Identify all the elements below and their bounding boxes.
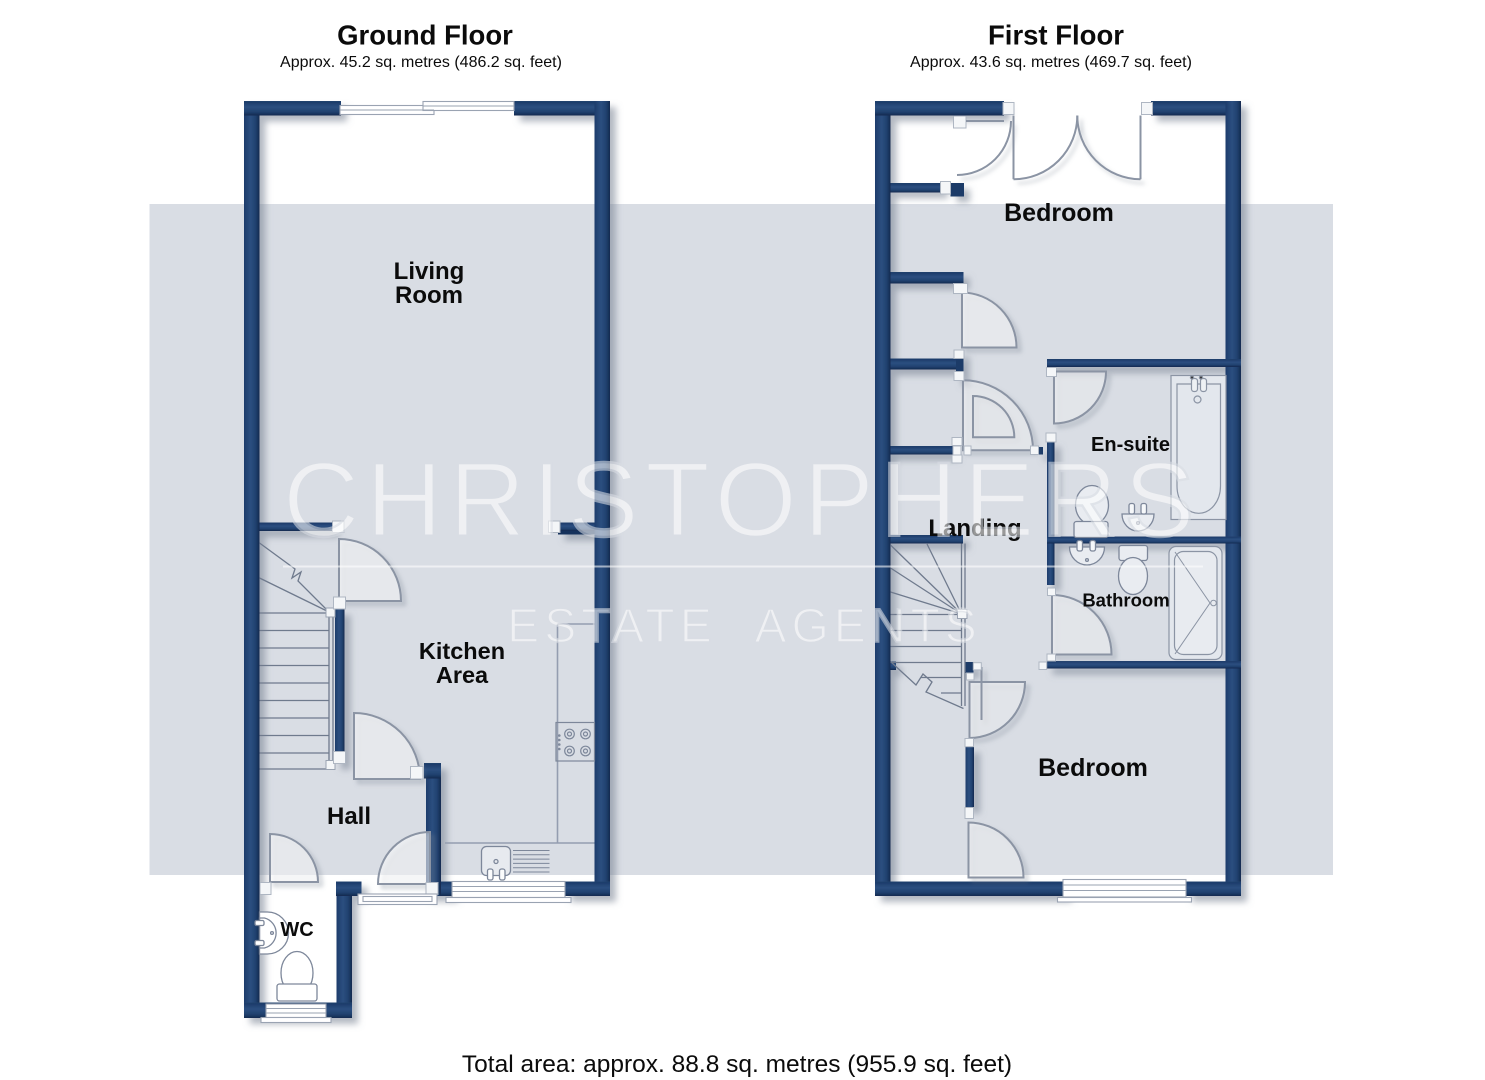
- svg-text:CHRISTOPHERS: CHRISTOPHERS: [283, 441, 1201, 559]
- svg-text:Hall: Hall: [327, 803, 371, 830]
- svg-text:ESTATE AGENTS: ESTATE AGENTS: [507, 600, 982, 653]
- svg-text:Kitchen: Kitchen: [419, 638, 505, 664]
- svg-text:Room: Room: [395, 282, 463, 309]
- svg-text:Living: Living: [394, 258, 465, 285]
- svg-text:Total area: approx. 88.8 sq. m: Total area: approx. 88.8 sq. metres (955…: [462, 1051, 1012, 1078]
- svg-text:Approx. 43.6 sq. metres (469.7: Approx. 43.6 sq. metres (469.7 sq. feet): [910, 54, 1192, 71]
- svg-text:Bedroom: Bedroom: [1038, 754, 1148, 782]
- svg-text:Ground Floor: Ground Floor: [337, 20, 513, 51]
- svg-text:First Floor: First Floor: [988, 20, 1124, 51]
- svg-text:Bathroom: Bathroom: [1082, 590, 1169, 611]
- svg-text:Area: Area: [436, 662, 489, 688]
- svg-text:Bedroom: Bedroom: [1004, 199, 1114, 227]
- svg-text:Approx. 45.2 sq. metres (486.2: Approx. 45.2 sq. metres (486.2 sq. feet): [280, 54, 562, 71]
- svg-text:WC: WC: [280, 919, 313, 941]
